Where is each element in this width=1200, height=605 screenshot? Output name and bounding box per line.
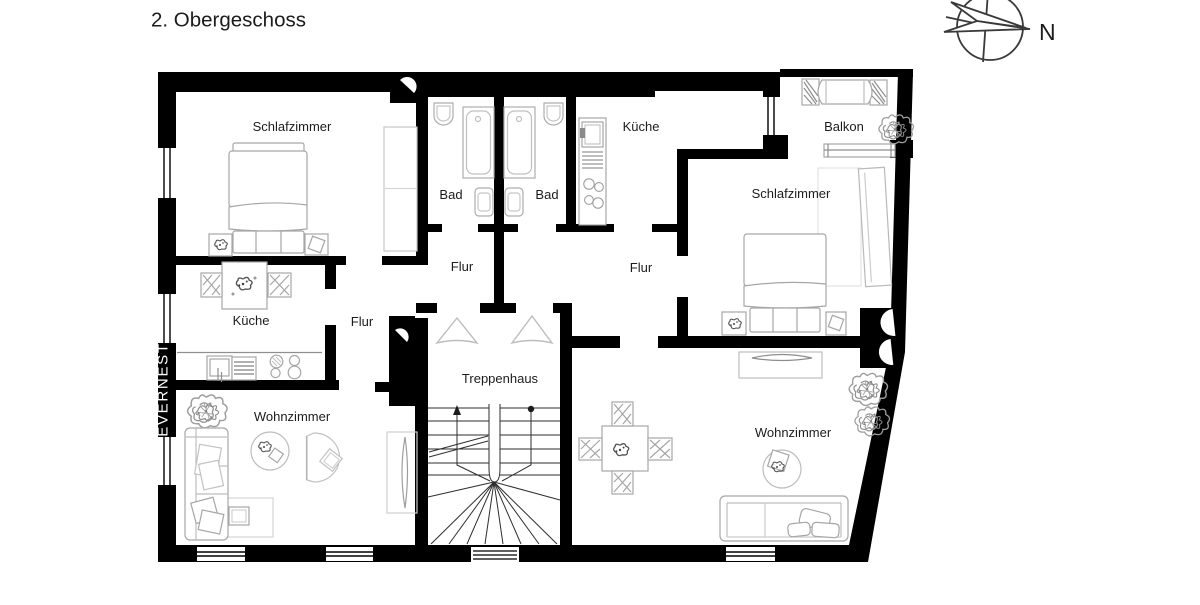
svg-text:EVERNEST: EVERNEST <box>155 342 172 436</box>
svg-text:Schlafzimmer: Schlafzimmer <box>253 119 332 134</box>
svg-text:Flur: Flur <box>351 314 374 329</box>
svg-text:Küche: Küche <box>233 313 270 328</box>
svg-text:2. Obergeschoss: 2. Obergeschoss <box>151 9 306 32</box>
svg-text:N: N <box>1039 19 1056 45</box>
svg-text:Wohnzimmer: Wohnzimmer <box>755 425 832 440</box>
svg-text:Treppenhaus: Treppenhaus <box>462 371 539 386</box>
svg-text:Flur: Flur <box>451 259 474 274</box>
svg-text:Bad: Bad <box>439 187 462 202</box>
svg-text:Balkon: Balkon <box>824 119 864 134</box>
svg-text:Küche: Küche <box>623 119 660 134</box>
svg-text:Wohnzimmer: Wohnzimmer <box>254 409 331 424</box>
svg-text:Bad: Bad <box>535 187 558 202</box>
svg-text:Flur: Flur <box>630 260 653 275</box>
svg-text:Schlafzimmer: Schlafzimmer <box>752 186 831 201</box>
